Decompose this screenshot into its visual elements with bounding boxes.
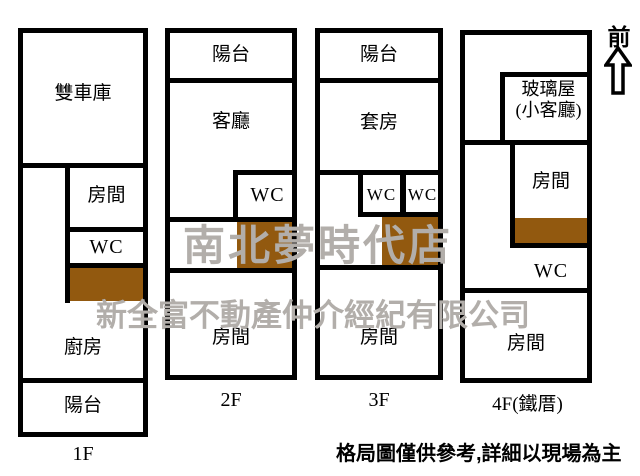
floor-label-2f: 2F — [165, 389, 297, 412]
room-label-4f-glass: 玻璃屋 — [505, 80, 592, 100]
wall-1f-inset-left — [65, 163, 70, 303]
room-label-4f-wc: WC — [510, 260, 592, 282]
watermark-company-name: 新全富不動產仲介經紀有限公司 — [96, 290, 530, 335]
wall-1f-garage-bottom — [18, 163, 148, 168]
wall-4f-room-left — [510, 140, 515, 248]
room-label-2f-wc: WC — [238, 184, 297, 206]
room-label-1f-wc: WC — [65, 236, 148, 258]
wall-3f-suite-bottom — [315, 170, 443, 175]
wall-2f-wc-top — [233, 170, 297, 175]
floor-label-4f: 4F(鐵厝) — [455, 389, 600, 416]
room-label-1f-garage: 雙車庫 — [18, 84, 148, 105]
wall-2f-balcony — [165, 78, 297, 83]
watermark-store-name: 南北夢時代店 — [183, 212, 453, 273]
wall-4f-glass-top — [500, 72, 592, 77]
wall-4f-glass-bottom — [460, 140, 592, 145]
wall-4f-stairs-bottom — [510, 243, 592, 248]
room-label-3f-wc-right: WC — [406, 186, 439, 205]
room-label-4f-room-lower: 房間 — [460, 334, 592, 355]
floor-label-3f: 3F — [315, 389, 443, 412]
wall-1f-kitchen-balcony — [18, 378, 148, 383]
room-label-3f-suite: 套房 — [315, 113, 443, 134]
wall-3f-balcony — [315, 78, 443, 83]
room-label-1f-kitchen: 廚房 — [18, 338, 148, 359]
floor-plan-canvas: 雙車庫 房間 WC 廚房 陽台 1F 陽台 客廳 WC 房間 2F 陽台 套房 … — [0, 0, 640, 476]
disclaimer-note: 格局圖僅供參考,詳細以現場為主 — [336, 437, 622, 466]
room-label-2f-living: 客廳 — [165, 112, 297, 133]
room-label-4f-room-upper: 房間 — [510, 172, 592, 193]
floor-label-1f: 1F — [18, 443, 148, 466]
room-label-1f-balcony: 陽台 — [18, 396, 148, 417]
up-arrow-icon — [604, 46, 632, 96]
room-label-3f-wc-left: WC — [363, 186, 400, 205]
room-label-3f-balcony: 陽台 — [315, 45, 443, 66]
room-label-1f-room: 房間 — [65, 186, 148, 207]
room-label-2f-balcony: 陽台 — [165, 45, 297, 66]
wall-1f-wc-bottom — [65, 263, 148, 268]
room-label-4f-glass-note: (小客廳) — [505, 101, 592, 121]
wall-1f-room-wc — [65, 227, 148, 232]
